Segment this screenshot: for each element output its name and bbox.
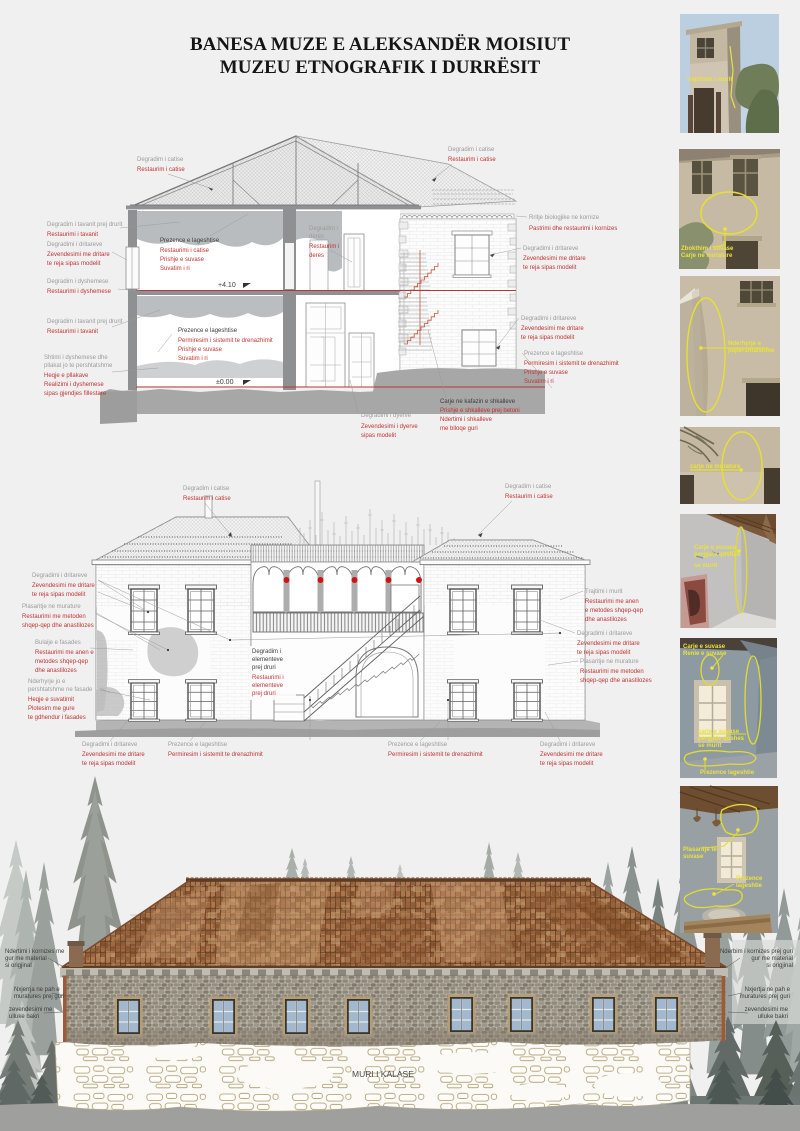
svg-text:Degradim i: Degradim i <box>252 649 281 655</box>
svg-text:Plasaritje ne murature: Plasaritje ne murature <box>580 659 639 665</box>
svg-text:suvase: suvase <box>683 854 704 860</box>
svg-text:Plasaritje ne murature: Plasaritje ne murature <box>22 604 81 610</box>
svg-text:Restaurim i catise: Restaurim i catise <box>137 167 185 173</box>
svg-text:gur me material: gur me material <box>5 956 47 962</box>
svg-text:te reja sipas modelit: te reja sipas modelit <box>82 761 136 767</box>
svg-text:Renie e suvase: Renie e suvase <box>683 651 727 657</box>
svg-text:Carje ne kafazin e shkalleve: Carje ne kafazin e shkalleve <box>440 399 516 405</box>
svg-text:Prezence lageshtie: Prezence lageshtie <box>700 770 755 776</box>
svg-text:Permiresim i sistemit te drena: Permiresim i sistemit te drenazhimit <box>168 752 263 758</box>
svg-text:e metodes shqep-qep: e metodes shqep-qep <box>585 608 644 614</box>
svg-text:Prezence: Prezence <box>736 876 763 882</box>
svg-text:Prishje e suvase: Prishje e suvase <box>524 370 569 376</box>
svg-text:Permiresim i sistemit te drena: Permiresim i sistemit te drenazhimit <box>388 752 483 758</box>
svg-text:te reja sipas modelit: te reja sipas modelit <box>47 261 101 267</box>
svg-text:Plotesim me gure: Plotesim me gure <box>28 706 75 712</box>
svg-text:Zbokthim i suvase: Zbokthim i suvase <box>681 246 734 252</box>
svg-text:Restaurim i catise: Restaurim i catise <box>505 494 553 500</box>
svg-text:Zevendesimi i dyerve: Zevendesimi i dyerve <box>361 424 418 430</box>
svg-text:Nxjertja ne pah e: Nxjertja ne pah e <box>745 987 791 993</box>
svg-text:gur me material: gur me material <box>751 956 793 962</box>
svg-text:Degradimi i dritareve: Degradimi i dritareve <box>82 742 138 748</box>
svg-text:Degradimi i dritareve: Degradimi i dritareve <box>540 742 596 748</box>
svg-text:carje ne murature: carje ne murature <box>690 464 741 470</box>
svg-text:Degradim i dyshemese: Degradim i dyshemese <box>47 279 109 285</box>
svg-text:zevendesimi me: zevendesimi me <box>9 1007 53 1013</box>
svg-text:Degradim i: Degradim i <box>309 226 338 232</box>
svg-text:Prishje e suvase: Prishje e suvase <box>160 257 205 263</box>
svg-text:Prezence e lageshtise: Prezence e lageshtise <box>160 238 220 244</box>
svg-text:muratures prej guri: muratures prej guri <box>14 994 64 1000</box>
svg-text:Degradim i catise: Degradim i catise <box>505 484 552 490</box>
svg-text:Degradimi i dritareve: Degradimi i dritareve <box>521 316 577 322</box>
svg-text:ulluke bakri: ulluke bakri <box>9 1014 39 1020</box>
svg-text:Prishje e shkalleve prej beton: Prishje e shkalleve prej betoni <box>440 408 520 414</box>
svg-text:MUZEU ETNOGRAFIK I DURRËSIT: MUZEU ETNOGRAFIK I DURRËSIT <box>220 57 541 78</box>
svg-text:Shtimi i dyshemese dhe: Shtimi i dyshemese dhe <box>44 355 108 361</box>
svg-text:pershtatshme ne fasade: pershtatshme ne fasade <box>28 687 93 693</box>
svg-text:Prezence e lageshtise: Prezence e lageshtise <box>524 351 584 357</box>
svg-text:Zevendesimi me dritare: Zevendesimi me dritare <box>523 256 586 262</box>
svg-text:shqep-qep dhe anastilozes: shqep-qep dhe anastilozes <box>22 623 94 629</box>
svg-text:Degradimi i dyerve: Degradimi i dyerve <box>361 413 412 419</box>
svg-text:prej druri: prej druri <box>252 691 276 697</box>
svg-text:muratures prej guri: muratures prej guri <box>740 994 790 1000</box>
svg-text:si origjinal: si origjinal <box>5 963 32 969</box>
svg-text:Restaurim i: Restaurim i <box>309 244 339 250</box>
svg-text:te gdhendur i fasades: te gdhendur i fasades <box>28 715 86 721</box>
svg-text:Suvatim i ri: Suvatim i ri <box>160 266 190 272</box>
svg-text:si origjinal: si origjinal <box>766 963 793 969</box>
svg-text:Carje ne murature: Carje ne murature <box>681 253 733 259</box>
svg-text:Prezence e lageshtise: Prezence e lageshtise <box>168 742 228 748</box>
svg-text:zevendesimi me: zevendesimi me <box>745 1007 789 1013</box>
svg-text:Degradim i catise: Degradim i catise <box>183 486 230 492</box>
svg-text:Heqje e suvatimit: Heqje e suvatimit <box>28 697 74 703</box>
svg-text:Restaurim i catise: Restaurim i catise <box>183 496 231 502</box>
svg-text:elementeve: elementeve <box>252 683 284 689</box>
svg-text:Nderbim i kornizes prej guri: Nderbim i kornizes prej guri <box>720 949 793 955</box>
svg-text:elementeve: elementeve <box>252 657 284 663</box>
svg-text:Bulaije e fasades: Bulaije e fasades <box>35 640 81 646</box>
svg-text:te reja sipas modelit: te reja sipas modelit <box>523 265 577 271</box>
svg-text:Degradim i catise: Degradim i catise <box>137 157 184 163</box>
svg-text:Restaurimi i catise: Restaurimi i catise <box>160 248 210 254</box>
svg-text:Nderhyrje jo e: Nderhyrje jo e <box>28 679 66 685</box>
svg-text:me blloqe guri: me blloqe guri <box>440 426 478 432</box>
svg-text:Nderhyrje e: Nderhyrje e <box>728 341 762 347</box>
svg-text:te reja sipas modelit: te reja sipas modelit <box>540 761 594 767</box>
svg-text:papershtatshme: papershtatshme <box>728 348 775 354</box>
svg-text:Restaurimi i: Restaurimi i <box>252 675 284 681</box>
svg-text:dhe anastilozes: dhe anastilozes <box>585 617 627 623</box>
svg-text:Nxjerrja ne pah e: Nxjerrja ne pah e <box>14 987 60 993</box>
svg-text:Restaurimi me anen e: Restaurimi me anen e <box>35 650 94 656</box>
svg-text:Permiresim i sistemit te drena: Permiresim i sistemit te drenazhimit <box>524 361 619 367</box>
svg-text:Restaurimi i tavanit: Restaurimi i tavanit <box>47 329 98 335</box>
svg-text:Restaurimi i tavanit: Restaurimi i tavanit <box>47 232 98 238</box>
svg-text:Prishje e suvase: Prishje e suvase <box>178 347 223 353</box>
svg-text:deres: deres <box>309 234 324 240</box>
svg-text:MURI I KALASE: MURI I KALASE <box>352 1069 414 1079</box>
svg-text:Realizimi i dyshemese: Realizimi i dyshemese <box>44 382 104 388</box>
svg-text:Degradimi i dritareve: Degradimi i dritareve <box>47 242 103 248</box>
svg-text:Restaurimi me anen: Restaurimi me anen <box>585 599 639 605</box>
svg-text:pergjate qoshes: pergjate qoshes <box>694 552 741 558</box>
svg-text:Restaurimi me metoden: Restaurimi me metoden <box>22 614 86 620</box>
svg-text:dhe anastilozes: dhe anastilozes <box>35 668 77 674</box>
svg-text:se murit: se murit <box>698 743 721 749</box>
svg-text:te reja sipas modelit: te reja sipas modelit <box>521 335 575 341</box>
svg-text:Zevendesimi me dritare: Zevendesimi me dritare <box>577 641 640 647</box>
svg-text:Restaurimi i dyshemese: Restaurimi i dyshemese <box>47 289 112 295</box>
svg-text:Degradimi i dritareve: Degradimi i dritareve <box>577 631 633 637</box>
svg-text:Rritje biologjike ne kornize: Rritje biologjike ne kornize <box>529 215 600 221</box>
svg-text:Carje e suvase: Carje e suvase <box>683 644 726 650</box>
svg-text:Prezence e lageshtise: Prezence e lageshtise <box>388 742 448 748</box>
svg-text:Zevendesimi me dritare: Zevendesimi me dritare <box>82 752 145 758</box>
svg-text:Degradim i catise: Degradim i catise <box>448 147 495 153</box>
svg-text:prej druri: prej druri <box>252 665 276 671</box>
svg-text:Ndertimi i kornizes me: Ndertimi i kornizes me <box>5 949 65 955</box>
svg-text:se murit: se murit <box>694 563 717 569</box>
svg-text:Permiresim i sistemit te drena: Permiresim i sistemit te drenazhimit <box>178 338 273 344</box>
svg-text:te reja sipas modelit: te reja sipas modelit <box>577 650 631 656</box>
svg-text:Suvatim i ri: Suvatim i ri <box>524 379 554 385</box>
svg-text:Zevendesimi me dritare: Zevendesimi me dritare <box>32 583 95 589</box>
svg-text:deres: deres <box>309 253 324 259</box>
svg-text:Degradimi i dritareve: Degradimi i dritareve <box>523 246 579 252</box>
svg-text:ulluke bakri: ulluke bakri <box>758 1014 788 1020</box>
svg-text:sipas modelit: sipas modelit <box>361 433 396 439</box>
svg-text:+4.10: +4.10 <box>218 282 236 289</box>
svg-text:te reja sipas modelit: te reja sipas modelit <box>32 592 86 598</box>
svg-text:Pastrimi dhe restaurimi i korn: Pastrimi dhe restaurimi i kornizes <box>529 226 617 232</box>
svg-text:Restaurim i catise: Restaurim i catise <box>448 157 496 163</box>
svg-text:Suvatim i ri: Suvatim i ri <box>178 356 208 362</box>
svg-text:shqep-qep dhe anastilozes: shqep-qep dhe anastilozes <box>580 678 652 684</box>
svg-text:Heqje e pllakave: Heqje e pllakave <box>44 373 89 379</box>
svg-text:±0.00: ±0.00 <box>216 379 234 386</box>
svg-text:Ndertimi i shkalleve: Ndertimi i shkalleve <box>440 417 493 423</box>
svg-text:Prezence e lageshtise: Prezence e lageshtise <box>178 328 238 334</box>
svg-text:Zevendesimi me dritare: Zevendesimi me dritare <box>540 752 603 758</box>
svg-text:Degradim i tavanit prej drurit: Degradim i tavanit prej drurit <box>47 222 123 228</box>
svg-text:BANESA MUZE E ALEKSANDËR MOISI: BANESA MUZE E ALEKSANDËR MOISIUT <box>190 34 570 55</box>
svg-text:sipas gjendjes fillestare: sipas gjendjes fillestare <box>44 391 107 397</box>
svg-text:Zevendesimi me dritare: Zevendesimi me dritare <box>521 326 584 332</box>
svg-text:Trajtimi i murit: Trajtimi i murit <box>585 589 623 595</box>
svg-text:trajtimim i murit: trajtimim i murit <box>687 77 732 83</box>
svg-text:metodes shqep-qep: metodes shqep-qep <box>35 659 89 665</box>
svg-text:Plasaritje te: Plasaritje te <box>683 847 717 853</box>
svg-text:pergjate qoshes: pergjate qoshes <box>698 736 745 742</box>
svg-text:Degradimi i dritareve: Degradimi i dritareve <box>32 573 88 579</box>
svg-text:pllakat jo te pershtatshme: pllakat jo te pershtatshme <box>44 363 113 369</box>
svg-text:Carje e suvase: Carje e suvase <box>694 545 737 551</box>
svg-text:lageshtie: lageshtie <box>736 883 763 889</box>
svg-text:Degradim i tavanit prej drurit: Degradim i tavanit prej drurit <box>47 319 123 325</box>
svg-text:Zevendesimi me dritare: Zevendesimi me dritare <box>47 252 110 258</box>
svg-text:Restaurimi me metoden: Restaurimi me metoden <box>580 669 644 675</box>
